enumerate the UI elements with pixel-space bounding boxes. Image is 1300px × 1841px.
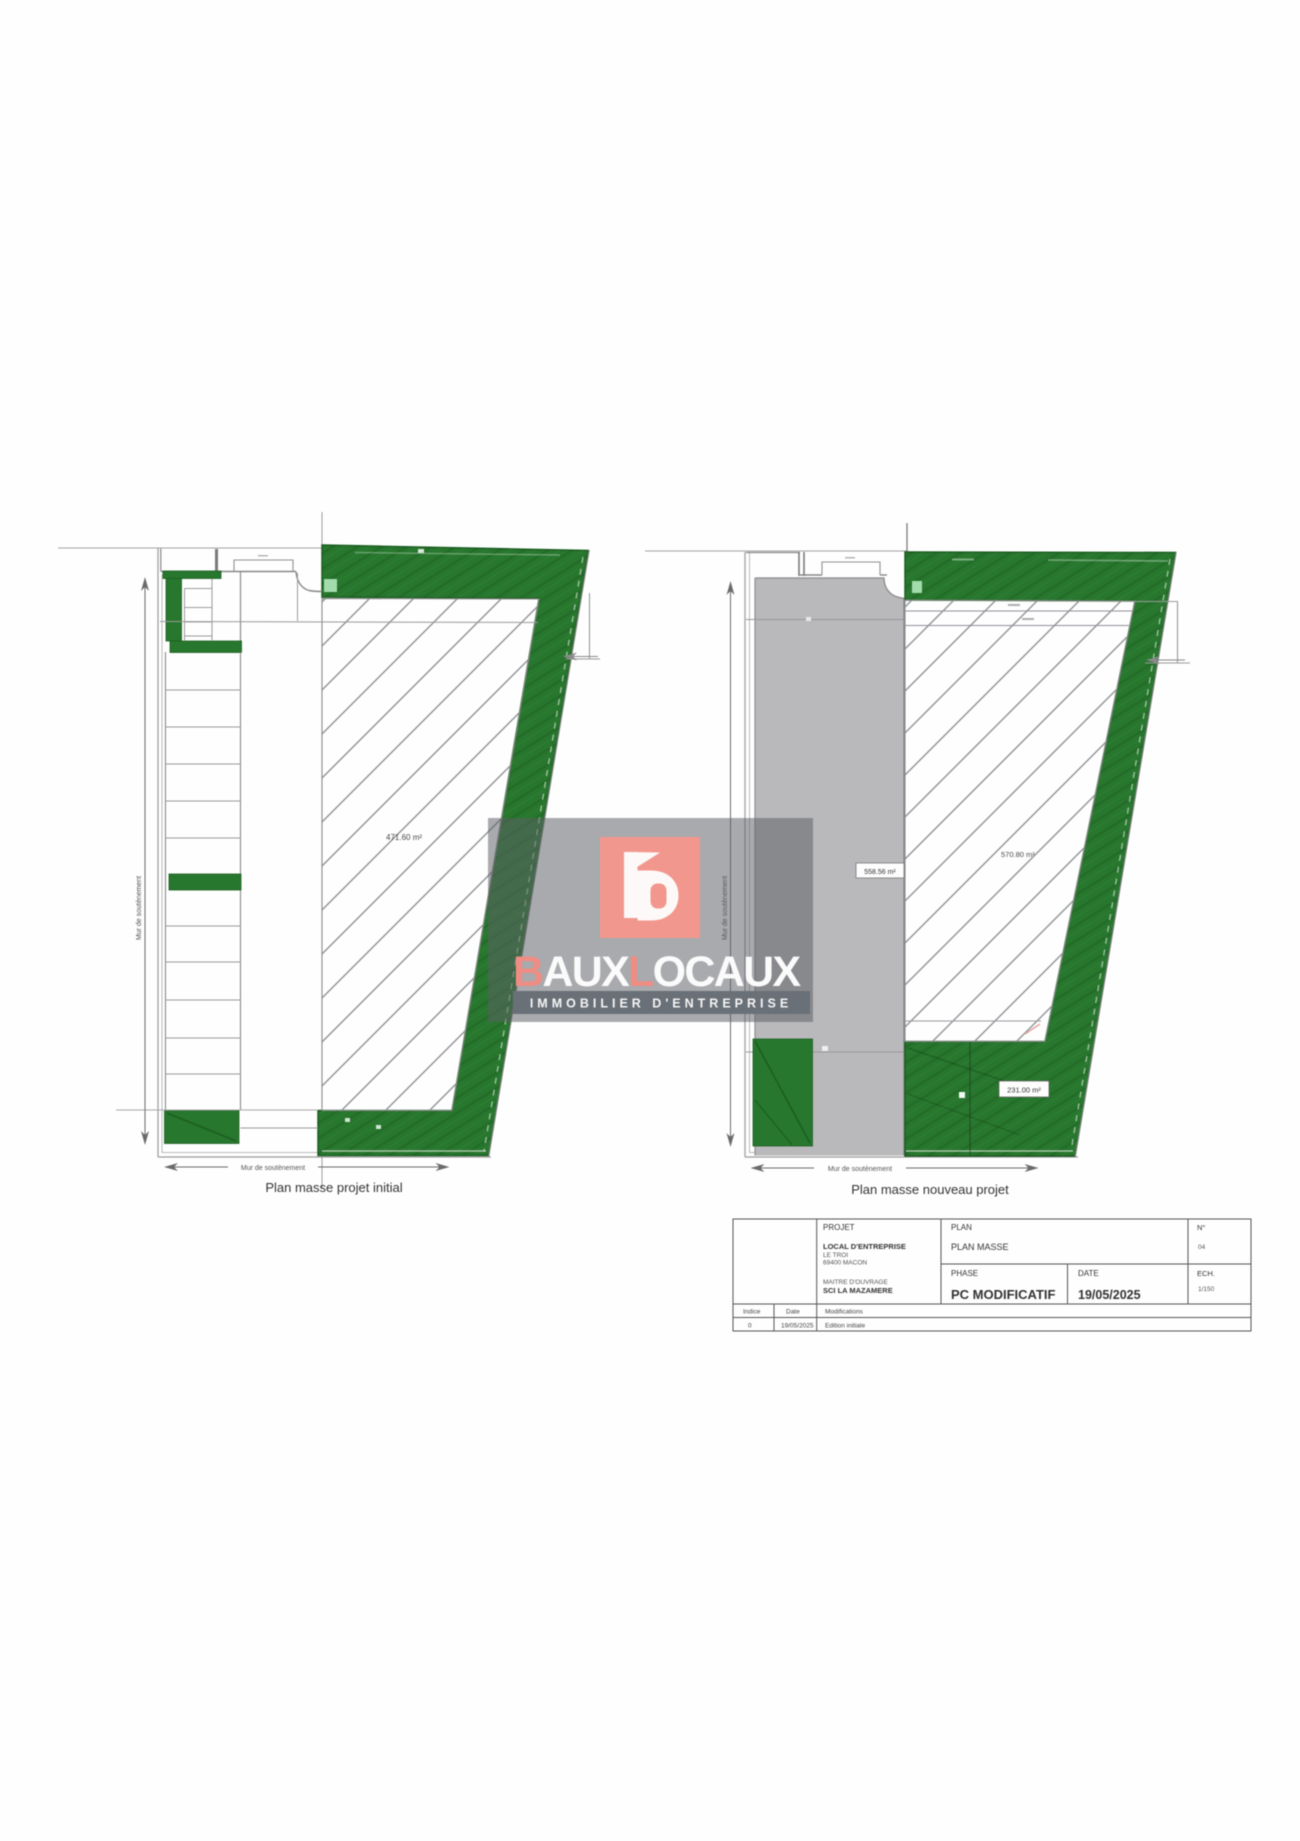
svg-text:SCI LA MAZAMERE: SCI LA MAZAMERE — [823, 1286, 893, 1295]
svg-text:Plan masse projet initial: Plan masse projet initial — [265, 1180, 402, 1195]
svg-text:PHASE: PHASE — [951, 1269, 978, 1278]
svg-text:1/150: 1/150 — [1198, 1286, 1215, 1293]
svg-text:LE TROI: LE TROI — [823, 1252, 848, 1259]
svg-text:471.60 m²: 471.60 m² — [386, 833, 422, 842]
svg-text:04: 04 — [1198, 1244, 1206, 1251]
svg-text:Modifications: Modifications — [825, 1309, 864, 1316]
svg-text:19/05/2025: 19/05/2025 — [1078, 1288, 1141, 1302]
svg-text:Plan masse nouveau projet: Plan masse nouveau projet — [851, 1182, 1009, 1197]
svg-text:ECH.: ECH. — [1197, 1269, 1215, 1278]
svg-text:0: 0 — [748, 1323, 752, 1330]
svg-text:570.80 m²: 570.80 m² — [1001, 850, 1035, 859]
svg-text:Edition initiale: Edition initiale — [825, 1323, 865, 1330]
svg-text:69400 MACON: 69400 MACON — [823, 1260, 867, 1267]
svg-text:BAUXLOCAUX: BAUXLOCAUX — [513, 948, 801, 996]
svg-text:IMMOBILIER D'ENTREPRISE: IMMOBILIER D'ENTREPRISE — [530, 997, 792, 1011]
svg-text:558.56 m²: 558.56 m² — [864, 869, 896, 876]
svg-text:Mur de soutènement: Mur de soutènement — [136, 876, 143, 940]
svg-text:19/05/2025: 19/05/2025 — [781, 1323, 814, 1330]
svg-text:MAITRE D'OUVRAGE: MAITRE D'OUVRAGE — [823, 1279, 888, 1286]
svg-text:Date: Date — [786, 1309, 800, 1316]
svg-text:Mur de soutènement: Mur de soutènement — [241, 1165, 305, 1172]
svg-text:PLAN: PLAN — [951, 1223, 972, 1232]
svg-text:PC MODIFICATIF: PC MODIFICATIF — [951, 1287, 1056, 1302]
svg-text:N°: N° — [1197, 1223, 1205, 1232]
svg-text:Indice: Indice — [743, 1309, 761, 1316]
svg-text:Mur de soutènement: Mur de soutènement — [828, 1166, 892, 1173]
svg-text:DATE: DATE — [1078, 1269, 1099, 1278]
svg-text:LOCAL D'ENTREPRISE: LOCAL D'ENTREPRISE — [823, 1242, 906, 1251]
svg-text:231.00 m²: 231.00 m² — [1007, 1086, 1041, 1095]
svg-text:PROJET: PROJET — [823, 1223, 855, 1232]
svg-text:PLAN MASSE: PLAN MASSE — [951, 1242, 1009, 1252]
